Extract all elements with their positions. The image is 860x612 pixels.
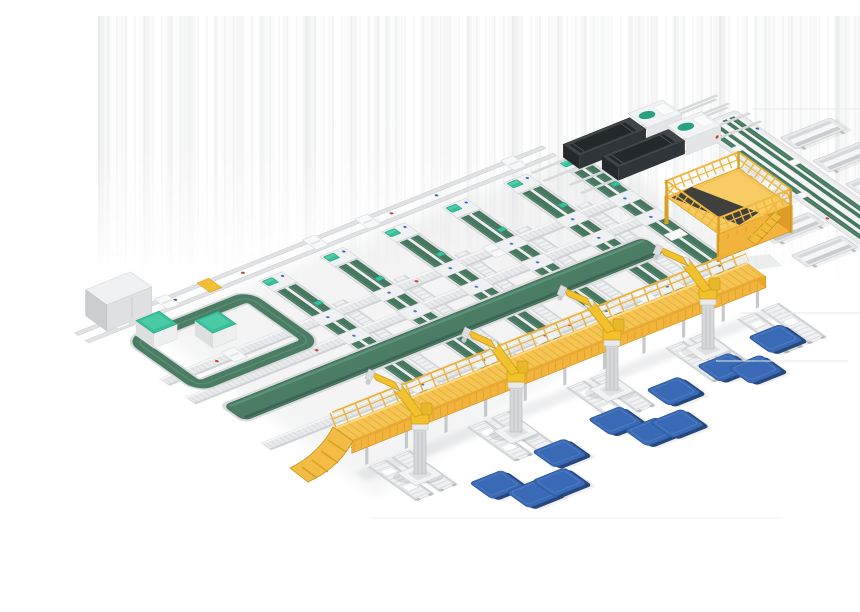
factory-scene	[40, 16, 860, 596]
factory-3d-render	[40, 16, 860, 596]
